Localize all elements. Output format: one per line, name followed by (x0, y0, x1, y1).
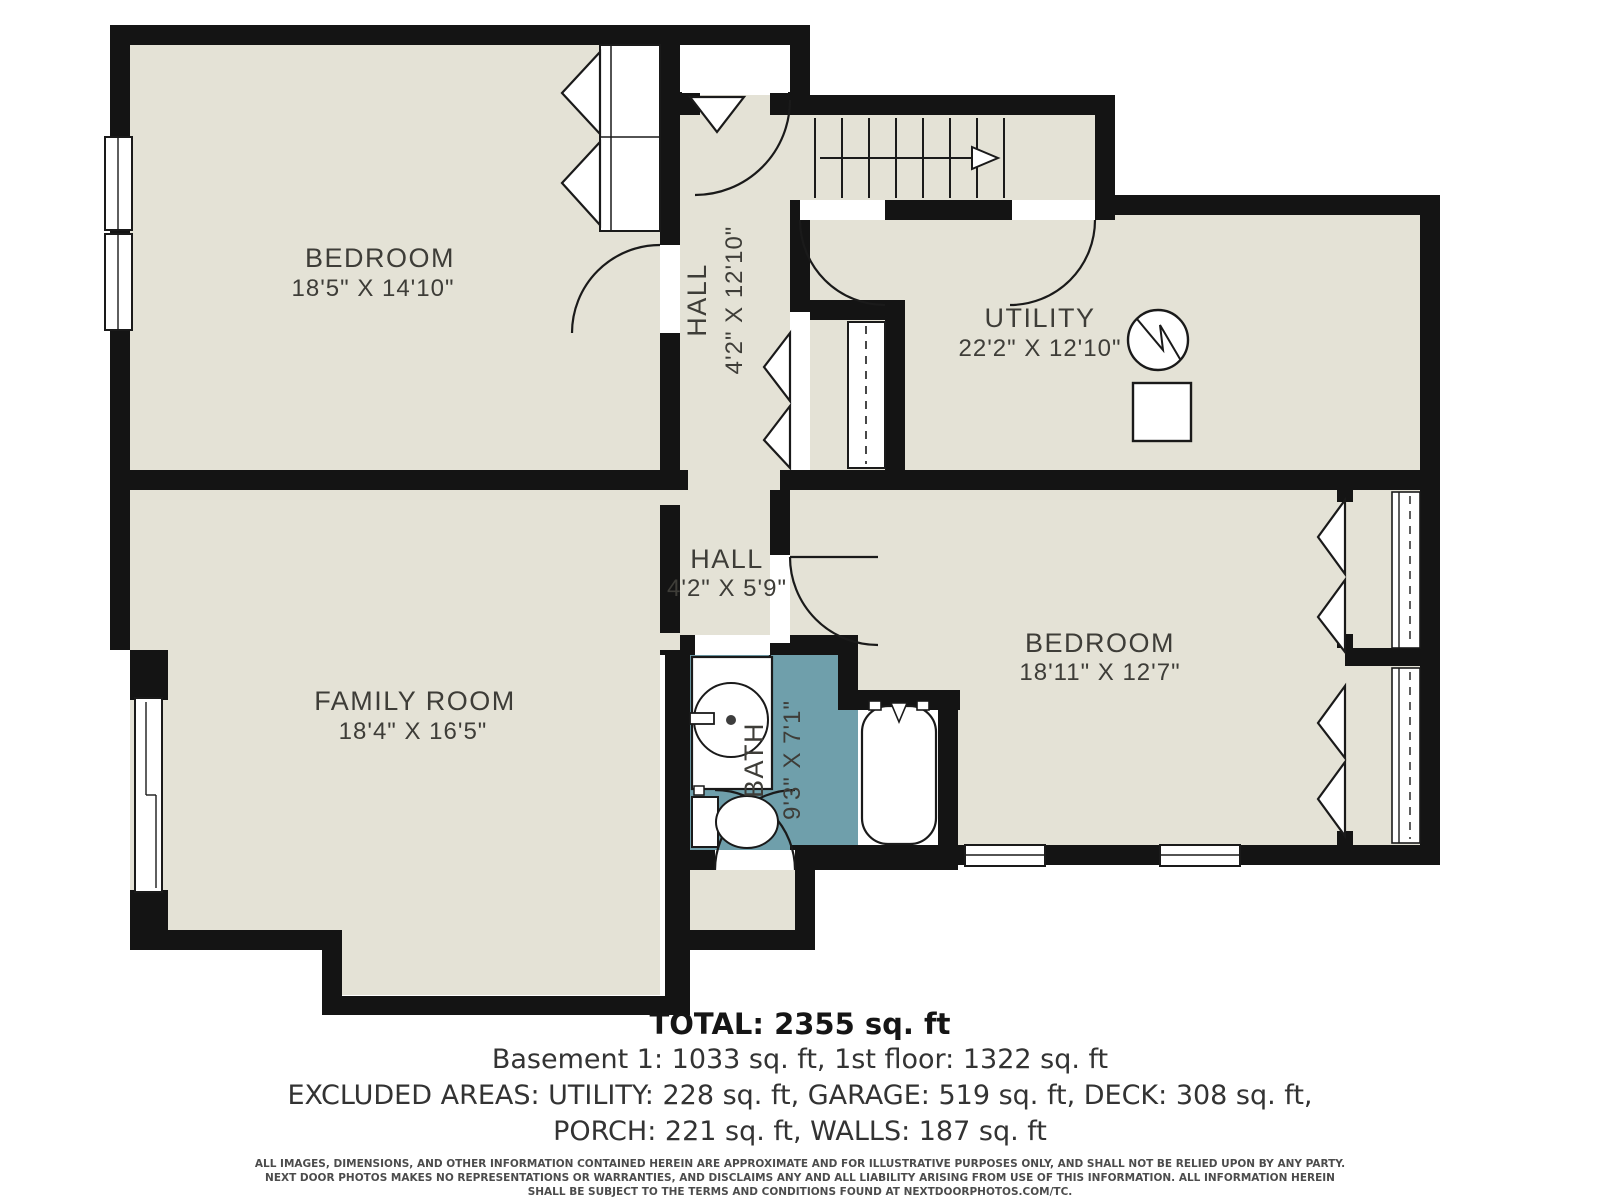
bath-label: BATH (739, 722, 769, 798)
bath-rear-door-opening (715, 850, 795, 870)
toilet-tank-icon (692, 797, 718, 847)
hall-passage-opening (688, 470, 780, 490)
hall2-label: HALL (690, 544, 764, 574)
utility-label: UTILITY (984, 303, 1095, 333)
faucet-icon (690, 713, 714, 724)
disclaimer-line: SHALL BE SUBJECT TO THE TERMS AND CONDIT… (0, 1186, 1600, 1200)
excluded-areas-text-2: PORCH: 221 sq. ft, WALLS: 187 sq. ft (0, 1114, 1600, 1150)
total-area-text: TOTAL: 2355 sq. ft (0, 1006, 1600, 1042)
bath-dims: 9'3" X 7'1" (779, 700, 806, 820)
bedroom2-closet-shelf (1392, 668, 1420, 843)
disclaimer-line: ALL IMAGES, DIMENSIONS, AND OTHER INFORM… (0, 1158, 1600, 1172)
bedroom2-closet-shelf (1392, 492, 1420, 648)
family-room-label: FAMILY ROOM (314, 686, 516, 716)
bedroom1-dims: 18'5" X 14'10" (292, 275, 455, 302)
hall2-dims: 4'2" X 5'9" (667, 575, 787, 602)
floor-areas-text: Basement 1: 1033 sq. ft, 1st floor: 1322… (0, 1042, 1600, 1078)
area-summary: TOTAL: 2355 sq. ft Basement 1: 1033 sq. … (0, 1006, 1600, 1200)
utility-dims: 22'2" X 12'10" (959, 335, 1122, 362)
alcove-floor (685, 870, 795, 930)
disclaimer: ALL IMAGES, DIMENSIONS, AND OTHER INFORM… (0, 1158, 1600, 1200)
bedroom1-closet-shelf (600, 45, 660, 231)
hall1-label: HALL (682, 263, 712, 337)
furnace-icon (1133, 383, 1191, 441)
stair-landing (682, 45, 788, 93)
bedroom1-label: BEDROOM (305, 243, 455, 273)
excluded-areas-text-1: EXCLUDED AREAS: UTILITY: 228 sq. ft, GAR… (0, 1078, 1600, 1114)
bedroom2-dims: 18'11" X 12'7" (1019, 659, 1180, 686)
family-room-dims: 18'4" X 16'5" (339, 718, 488, 745)
floor-plan-page: BEDROOM 18'5" X 14'10" HALL 4'2" X 12'10… (0, 0, 1600, 1200)
disclaimer-line: NEXT DOOR PHOTOS MAKES NO REPRESENTATION… (0, 1172, 1600, 1186)
utility-door-opening-2 (1012, 200, 1095, 220)
hall-stairs-opening (790, 115, 810, 200)
toilet-icon (716, 796, 778, 848)
bathtub-icon (862, 706, 936, 844)
bedroom1-door-opening (660, 245, 680, 333)
utility-door-opening-1 (800, 200, 885, 220)
bedroom2-label: BEDROOM (1025, 628, 1175, 658)
hall1-dims: 4'2" X 12'10" (721, 226, 748, 375)
bath-door-opening (695, 635, 770, 655)
